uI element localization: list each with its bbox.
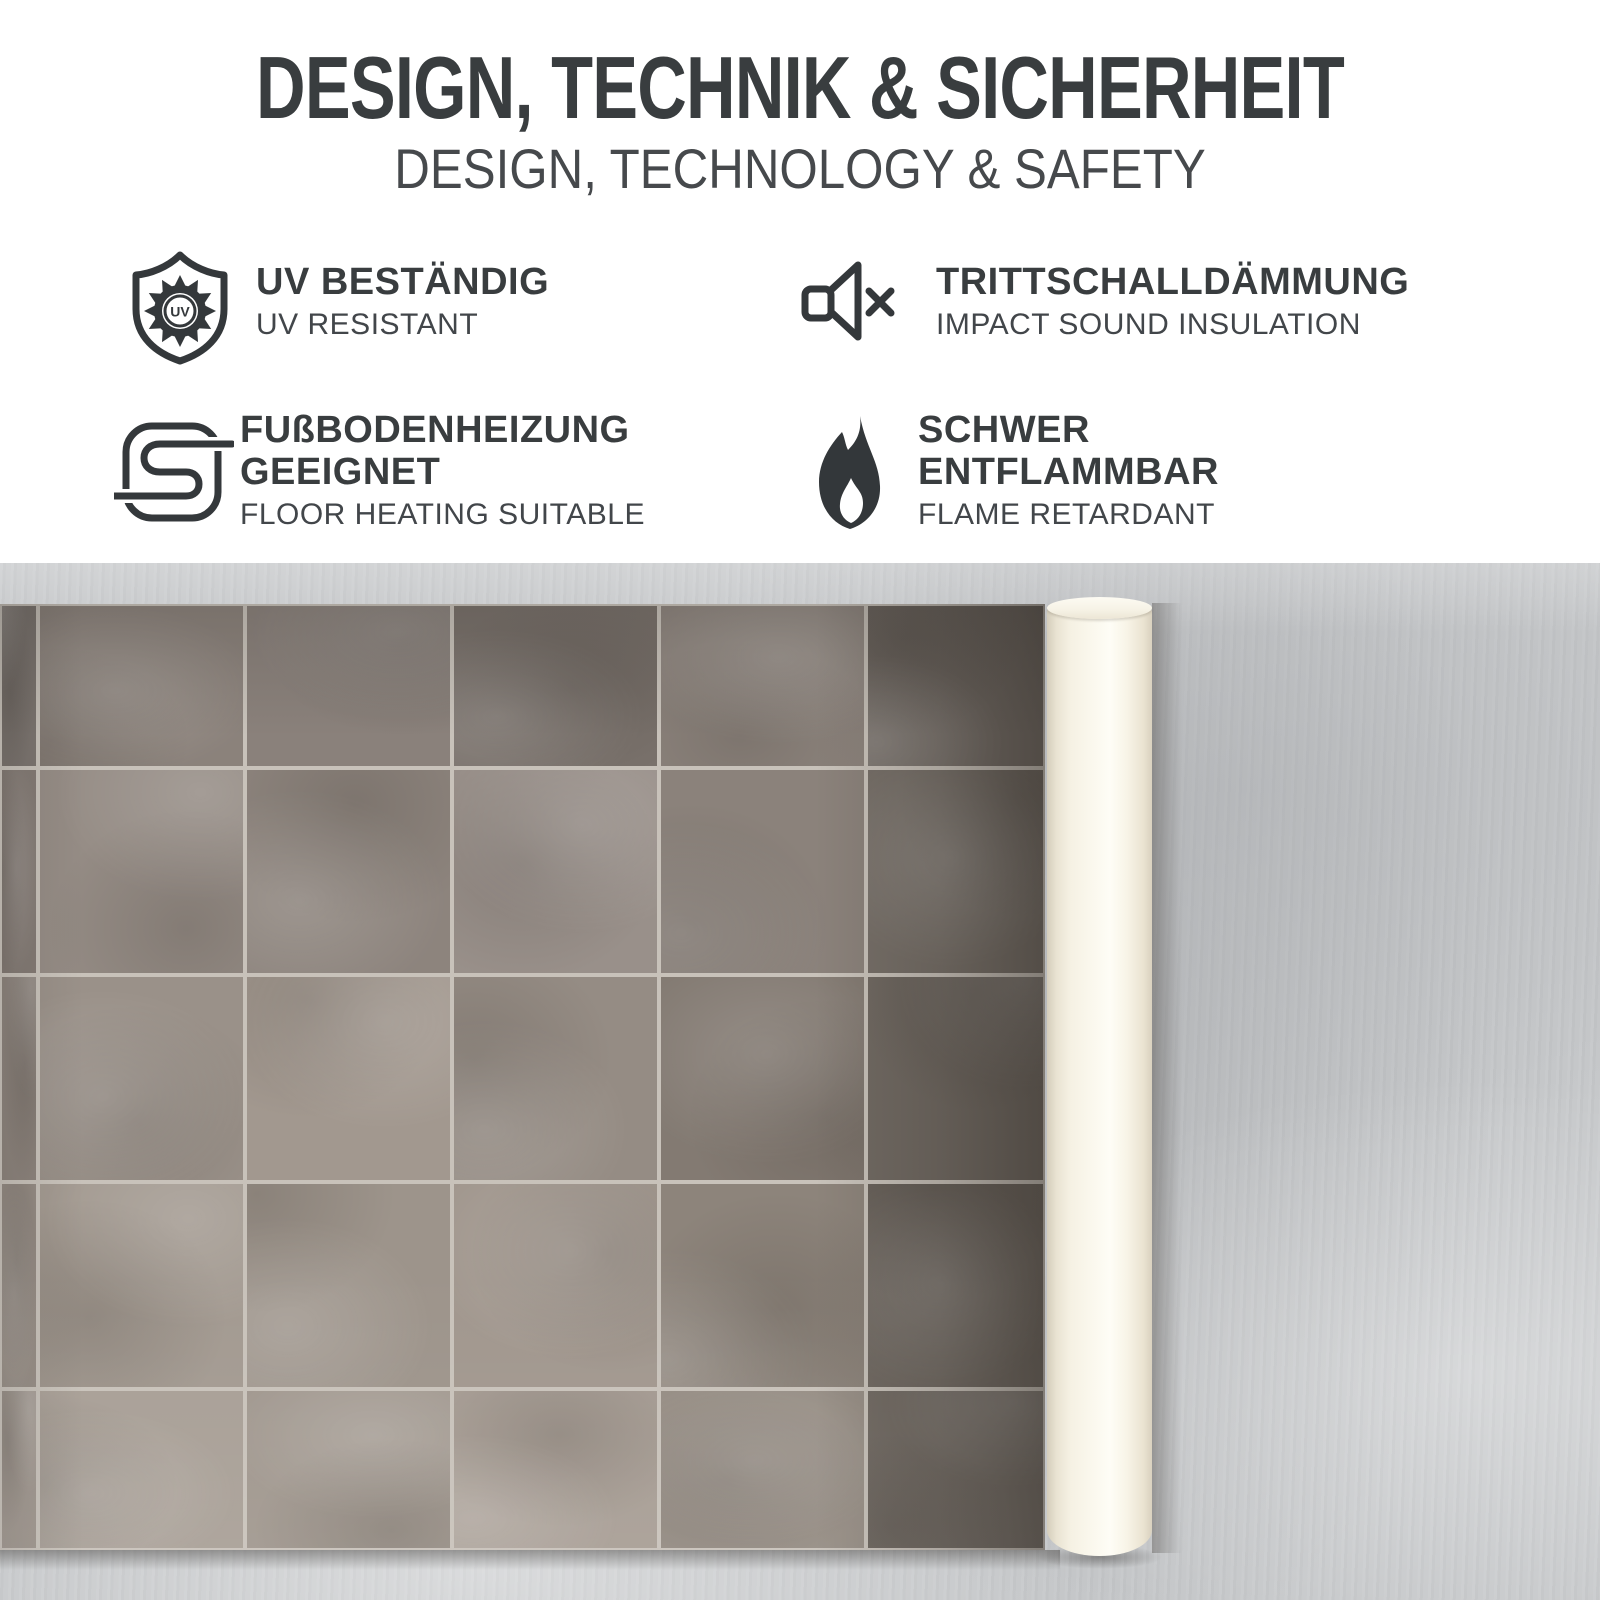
floor-tile [247,606,451,767]
floor-tile [2,1391,37,1549]
feature-heating-title: FUßBODENHEIZUNG GEEIGNET [240,409,670,493]
speaker-muted-icon [796,258,900,349]
floor-tile [454,1184,658,1388]
feature-sound-subtitle: IMPACT SOUND INSULATION [936,308,1409,342]
roll-wall-shadow [1152,603,1182,1553]
floor-tile [661,770,865,974]
uv-shield-icon: UV [126,249,234,370]
floor-tile [2,977,37,1181]
floor-tile [454,1391,658,1549]
floor-tile [247,1391,451,1549]
product-photo [0,563,1600,1600]
uv-icon-label: UV [170,304,190,320]
feature-sound-title: TRITTSCHALLDÄMMUNG [936,261,1409,303]
product-infographic: DESIGN, TECHNIK & SICHERHEIT DESIGN, TEC… [0,0,1600,1600]
floor-tile [247,977,451,1181]
floor-tile [2,606,37,767]
vinyl-roll [1047,598,1152,1556]
floor-tile [40,770,244,974]
feature-heating: FUßBODENHEIZUNG GEEIGNET FLOOR HEATING S… [240,409,670,532]
floor-tile [2,770,37,974]
floor-tile [661,1184,865,1388]
flame-icon [816,416,884,537]
floor-tile [40,606,244,767]
feature-flame-title: SCHWER ENTFLAMMBAR [918,409,1258,493]
floor-tile [247,770,451,974]
floor-tile [868,606,1044,767]
floor-tile [661,977,865,1181]
floor-tile [868,977,1044,1181]
floor-tile [247,1184,451,1388]
floor-tile [40,977,244,1181]
floor-tile [2,1184,37,1388]
page-subtitle: DESIGN, TECHNOLOGY & SAFETY [96,141,1504,197]
floor-tile [661,1391,865,1549]
feature-uv-subtitle: UV RESISTANT [256,308,549,342]
floor-tile [454,977,658,1181]
feature-uv: UV BESTÄNDIG UV RESISTANT [256,261,549,342]
floor-tile [868,1391,1044,1549]
vinyl-sheet [0,604,1045,1550]
page-title: DESIGN, TECHNIK & SICHERHEIT [176,44,1424,132]
floor-tile [661,606,865,767]
feature-flame: SCHWER ENTFLAMMBAR FLAME RETARDANT [918,409,1258,532]
feature-uv-title: UV BESTÄNDIG [256,261,549,303]
floor-tile [40,1184,244,1388]
feature-heating-subtitle: FLOOR HEATING SUITABLE [240,498,670,532]
floor-tile [454,770,658,974]
vinyl-roll-top-cap [1047,597,1152,619]
floor-tile [40,1391,244,1549]
feature-flame-subtitle: FLAME RETARDANT [918,498,1258,532]
floor-tile [454,606,658,767]
feature-sound: TRITTSCHALLDÄMMUNG IMPACT SOUND INSULATI… [936,261,1409,342]
floor-tile [868,770,1044,974]
floor-heating-icon [114,410,234,535]
sheet-bottom-shadow [0,1550,1060,1570]
floor-tile [868,1184,1044,1388]
